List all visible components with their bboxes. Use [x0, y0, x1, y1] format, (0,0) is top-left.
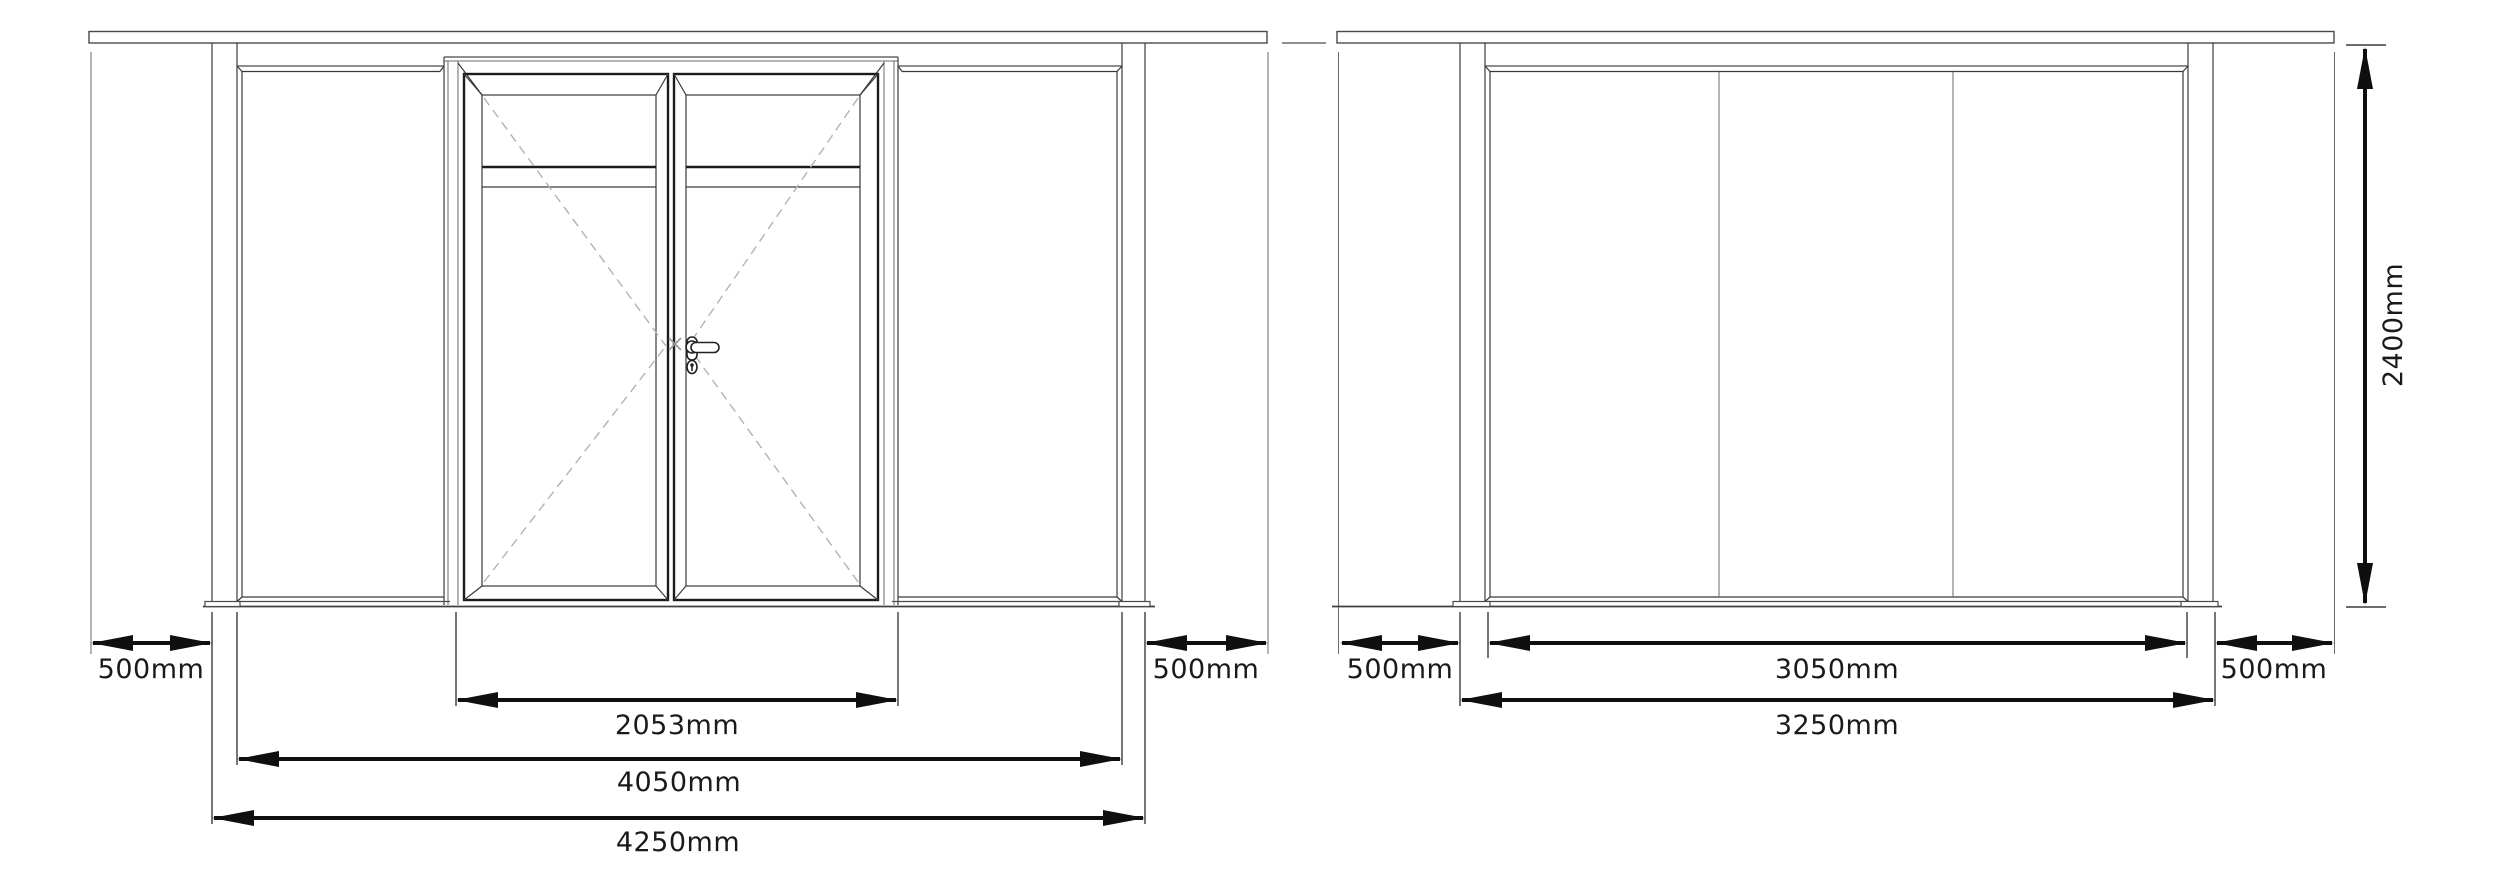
transom-rail	[482, 167, 656, 187]
door-swing-dashed-lines	[484, 98, 858, 582]
post-baseplate	[2181, 602, 2218, 607]
dim-side-left-500: 500mm	[1340, 635, 1460, 685]
dim-label: 500mm	[98, 654, 205, 685]
door-handle-icon	[686, 337, 719, 374]
fixed-glass-panel-right	[892, 72, 1122, 602]
dim-overall-3250: 3250mm	[1460, 692, 2215, 741]
post-baseplate	[1119, 602, 1150, 607]
floor-left-elevation	[203, 602, 1155, 607]
dim-label: 2400mm	[2378, 263, 2409, 387]
dim-height-2400: 2400mm	[2346, 45, 2409, 607]
handle-lever	[691, 343, 719, 353]
dim-label: 500mm	[2221, 654, 2328, 685]
dim-label: 4250mm	[616, 827, 740, 858]
post-baseplate	[205, 602, 240, 607]
dim-label: 4050mm	[617, 767, 741, 798]
door-left-leaf	[464, 74, 668, 600]
glazing-head-left	[237, 66, 444, 72]
dim-side-right-500: 500mm	[1145, 635, 1268, 685]
right-elevation-dimensions: 500mm 3050mm 3250mm 500mm	[1340, 45, 2409, 741]
dim-side-right-500: 500mm	[2215, 635, 2334, 685]
glazing-head-right	[898, 66, 1122, 72]
dim-glass-3050: 3050mm	[1488, 635, 2187, 685]
dim-label: 3250mm	[1775, 710, 1899, 741]
dim-label: 2053mm	[615, 710, 739, 741]
elevation-drawing-canvas: 500mm 2053mm 4050mm 4250mm 500mm	[0, 0, 2500, 883]
transom-rail	[686, 167, 860, 187]
dim-label: 500mm	[1153, 654, 1260, 685]
left-elevation-dimensions: 500mm 2053mm 4050mm 4250mm 500mm	[91, 612, 1268, 858]
dim-overall-4250: 4250mm	[212, 810, 1145, 858]
ceiling-band-left	[89, 32, 1267, 44]
post-baseplate	[1453, 602, 1490, 607]
ceiling-band-right	[1337, 32, 2334, 44]
glazing-frame	[1485, 66, 2188, 602]
dim-door-2053: 2053mm	[456, 692, 898, 741]
left-elevation	[89, 32, 1326, 655]
right-elevation	[1332, 32, 2335, 655]
floor-right-elevation	[1332, 602, 2222, 607]
dim-side-left-500: 500mm	[91, 635, 212, 685]
partition-elevations-svg: 500mm 2053mm 4050mm 4250mm 500mm	[0, 0, 2500, 883]
dim-opening-4050: 4050mm	[237, 751, 1122, 798]
dim-label: 3050mm	[1775, 654, 1899, 685]
door-right-leaf	[674, 74, 878, 600]
fixed-glass-panel-left	[237, 72, 450, 602]
dim-label: 500mm	[1347, 654, 1454, 685]
